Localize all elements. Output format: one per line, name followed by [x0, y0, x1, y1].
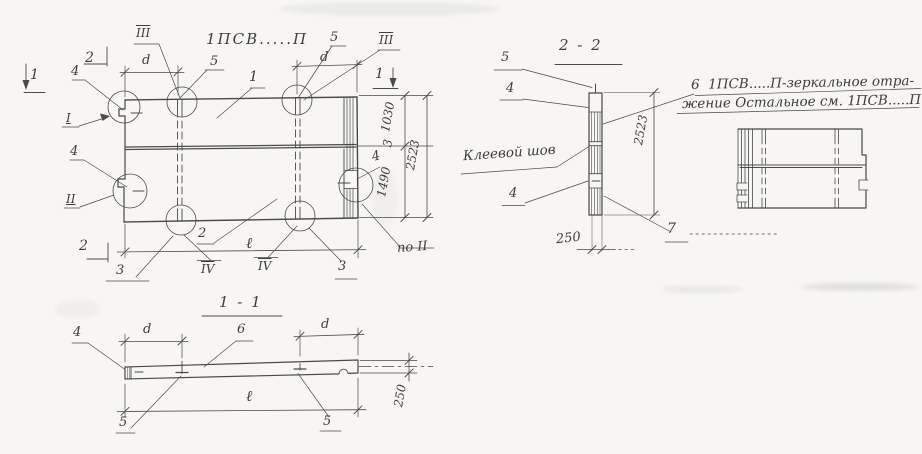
s11-pos-label-4: 4: [73, 326, 81, 339]
s22-dim-250: 250: [555, 231, 581, 247]
pos-label-4-mid-left: 4: [70, 145, 78, 158]
s11-dim-d-left: d: [143, 323, 151, 336]
pos-label-1: 1: [249, 70, 258, 84]
drawing-linework: [0, 0, 922, 454]
pos-label-5-top-right: 5: [330, 31, 338, 44]
ref-po-ii: по II: [397, 240, 428, 255]
drawing-sheet: 1ПСВ.....П III 5 d 1 5 III 1 2 4 I 4 II …: [0, 0, 922, 454]
s11-pos-label-5-right: 5: [323, 415, 331, 428]
section-marker-1-left: 1: [30, 68, 39, 82]
dim-d-left: d: [142, 54, 150, 67]
pos-label-2: 2: [198, 227, 206, 240]
detail-ref-iv-right: IV: [258, 260, 271, 272]
section-1-1-title: 1 - 1: [219, 295, 263, 310]
plan-title: 1ПСВ.....П: [206, 32, 308, 47]
section-marker-2-top: 2: [85, 51, 94, 65]
s11-dim-d-right: d: [321, 318, 329, 331]
s11-pos-label-5-left: 5: [119, 416, 127, 429]
s11-dim-250: 250: [392, 383, 408, 408]
section-marker-2-bottom: 2: [79, 239, 88, 253]
s22-pos-label-7: 7: [667, 222, 676, 236]
detail-ref-iv-left: IV: [201, 263, 214, 275]
pos-label-5-top-left: 5: [210, 55, 218, 68]
detail-ref-iii-left: III: [136, 27, 150, 39]
pos-label-3-bottom-left: 3: [116, 264, 124, 277]
dim-d-right: d: [320, 51, 328, 64]
detail-ref-iii-right: III: [379, 34, 393, 46]
s11-pos-label-6: 6: [237, 323, 245, 336]
s22-pos-label-4-top: 4: [506, 82, 514, 95]
pos-label-3-bottom-right: 3: [338, 260, 346, 273]
dim-length-plan: ℓ: [246, 236, 254, 251]
s22-pos-label-4-bottom: 4: [509, 187, 517, 200]
pos-label-4-top-left: 4: [71, 65, 79, 78]
section-marker-1-right: 1: [375, 67, 384, 81]
section-2-2-title: 2 - 2: [559, 38, 603, 53]
detail-ref-ii: II: [66, 193, 75, 205]
s11-dim-length: ℓ: [246, 389, 254, 404]
detail-ref-i: I: [66, 112, 71, 124]
mirror-view-linework: [737, 129, 868, 208]
s22-pos-label-5: 5: [501, 51, 509, 64]
